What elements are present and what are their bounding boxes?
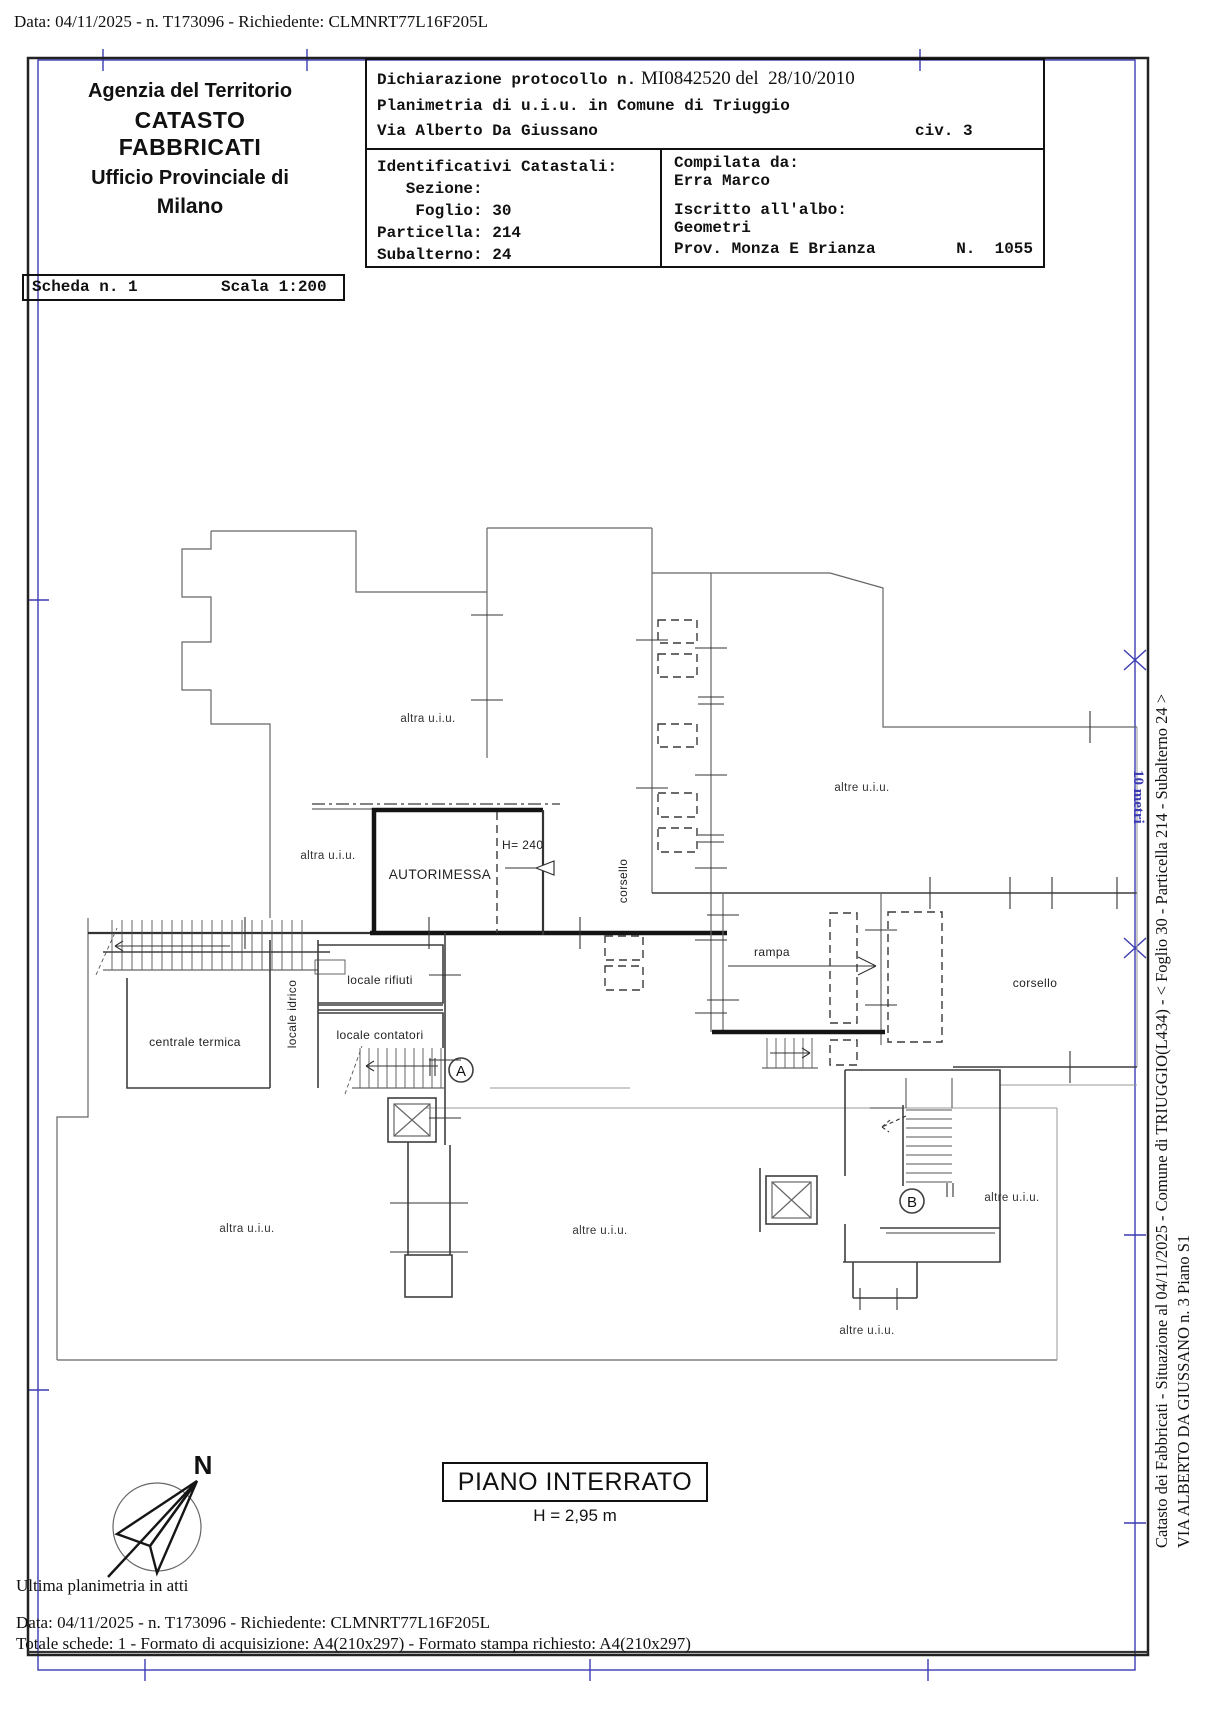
civic-number: civ. 3: [915, 122, 973, 140]
sheet-number: Scheda n. 1: [32, 278, 138, 296]
footer-totale-line: Totale schede: 1 - Formato di acquisizio…: [16, 1634, 691, 1654]
protocol-line: Dichiarazione protocollo n. MI0842520 de…: [377, 68, 1033, 90]
elevator-west: [388, 1098, 436, 1142]
stair-b-marker: B: [900, 1189, 924, 1213]
declaration-section: Dichiarazione protocollo n. MI0842520 de…: [367, 60, 1043, 150]
compass-north-label: N: [194, 1450, 213, 1480]
room-label-idrico: locale idrico: [285, 980, 299, 1049]
street-name: Via Alberto Da Giussano: [377, 122, 598, 140]
stair-a-marker: A: [449, 1058, 473, 1082]
protocol-value: MI0842520 del 28/10/2010: [636, 68, 855, 89]
province-row: Prov. Monza E Brianza N. 1055: [674, 240, 1033, 258]
compiler-section: Compilata da: Erra Marco Iscritto all'al…: [662, 150, 1043, 266]
identifier-sezione: Sezione:: [377, 178, 660, 200]
register-number: N. 1055: [956, 240, 1033, 258]
height-arrow-icon: [536, 861, 554, 875]
compiler-label: Compilata da:: [674, 154, 1033, 172]
area-label-altre-1: altre u.i.u.: [834, 782, 889, 794]
room-label-contatori: locale contatori: [336, 1028, 423, 1042]
corsello-east-label: corsello: [1013, 976, 1058, 990]
room-label-centrale-termica: centrale termica: [149, 1035, 241, 1049]
south-corridor: [390, 1142, 468, 1297]
plan-labels: altra u.i.u. altra u.i.u. altre u.i.u. a…: [149, 713, 1057, 1337]
identifier-particella: Particella: 214: [377, 222, 660, 244]
identifier-subalterno: Subalterno: 24: [377, 244, 660, 266]
staircase-a: [345, 1046, 445, 1094]
sheet-box: Scheda n. 1 Scala 1:200: [22, 274, 345, 301]
ramp-area: [712, 893, 885, 1068]
area-label-altre-3: altre u.i.u.: [984, 1192, 1039, 1204]
rampa-label: rampa: [754, 945, 790, 959]
room-label-autorimessa: AUTORIMESSA: [389, 867, 491, 882]
stair-a-label: A: [456, 1063, 466, 1080]
floor-plan: A: [57, 528, 1137, 1577]
floor-height-note: H = 2,95 m: [442, 1506, 708, 1526]
street-line: Via Alberto Da Giussanociv. 3: [377, 122, 1033, 140]
east-walls: [490, 1067, 1137, 1088]
b-block: [843, 1070, 1000, 1310]
province-name: Prov. Monza E Brianza: [674, 240, 876, 258]
area-label-altre-2: altre u.i.u.: [572, 1225, 627, 1237]
area-label-altra-1: altra u.i.u.: [400, 713, 455, 725]
staircase-northwest: [96, 920, 345, 975]
planimetria-line: Planimetria di u.i.u. in Comune di Triug…: [377, 97, 1033, 115]
agency-name: Agenzia del Territorio: [70, 80, 310, 103]
footer-data-line: Data: 04/11/2025 - n. T173096 - Richiede…: [16, 1613, 490, 1633]
agency-register: CATASTO FABBRICATI: [70, 107, 310, 161]
corsello-center-label: corsello: [616, 859, 630, 904]
cadastral-document-page: A: [0, 0, 1210, 1712]
protocol-label: Dichiarazione protocollo n.: [377, 71, 636, 89]
area-label-altra-3: altra u.i.u.: [219, 1223, 274, 1235]
ultima-note: Ultima planimetria in atti: [16, 1576, 188, 1596]
room-label-rifiuti: locale rifiuti: [347, 973, 413, 987]
elevator-east: [760, 1168, 817, 1232]
albo-label: Iscritto all'albo:: [674, 201, 1033, 219]
floor-title-box: PIANO INTERRATO: [442, 1462, 708, 1502]
compass-rose: N: [108, 1450, 212, 1577]
sidebar-catasto-line: Catasto dei Fabbricati - Situazione al 0…: [1152, 694, 1172, 1548]
declaration-box: Dichiarazione protocollo n. MI0842520 de…: [365, 58, 1045, 268]
compiler-name: Erra Marco: [674, 172, 1033, 190]
agency-city: Milano: [70, 195, 310, 219]
sheet-scale: Scala 1:200: [221, 278, 327, 296]
cadastral-identifiers: Identificativi Catastali: Sezione: Fogli…: [367, 150, 662, 266]
identifier-foglio: Foglio: 30: [377, 200, 660, 222]
albo-value: Geometri: [674, 219, 1033, 237]
sidebar-address-line: VIA ALBERTO DA GIUSSANO n. 3 Piano S1: [1174, 1235, 1194, 1548]
parking-stalls-dashed: [605, 620, 942, 1065]
area-label-altra-2: altra u.i.u.: [300, 850, 355, 862]
area-label-altre-4: altre u.i.u.: [839, 1325, 894, 1337]
request-header-line: Data: 04/11/2025 - n. T173096 - Richiede…: [14, 12, 488, 32]
stair-b-label: B: [907, 1194, 917, 1211]
scalebar-label: 10 metri: [1129, 770, 1146, 824]
identifiers-title: Identificativi Catastali:: [377, 156, 660, 178]
agency-block: Agenzia del Territorio CATASTO FABBRICAT…: [70, 80, 310, 219]
agency-office: Ufficio Provinciale di: [70, 167, 310, 190]
height-label: H= 240: [502, 838, 543, 852]
